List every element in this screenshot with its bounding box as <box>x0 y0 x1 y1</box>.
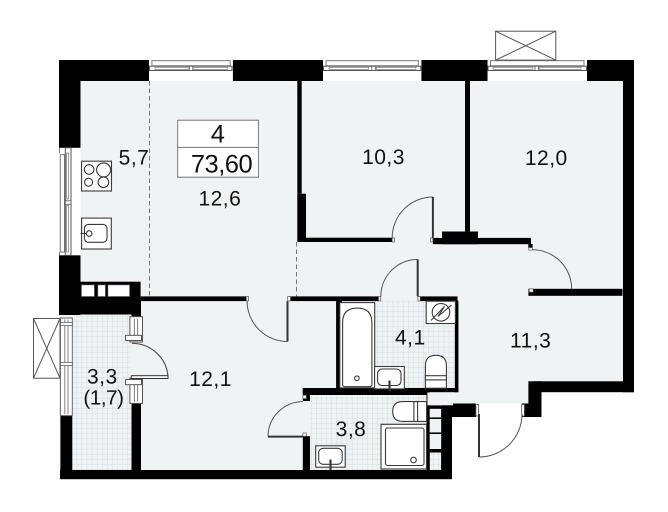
svg-text:5,7: 5,7 <box>119 147 150 170</box>
svg-text:4,1: 4,1 <box>395 327 426 350</box>
svg-text:11,3: 11,3 <box>510 330 551 353</box>
svg-text:12,0: 12,0 <box>525 147 568 170</box>
svg-text:3,3: 3,3 <box>87 366 118 389</box>
svg-text:12,1: 12,1 <box>189 368 232 391</box>
svg-text:4: 4 <box>211 120 225 148</box>
svg-text:10,3: 10,3 <box>362 146 405 169</box>
svg-text:73,60: 73,60 <box>191 150 253 178</box>
svg-text:12,6: 12,6 <box>198 187 241 210</box>
svg-text:(1,7): (1,7) <box>83 387 123 410</box>
svg-text:3,8: 3,8 <box>336 418 367 441</box>
